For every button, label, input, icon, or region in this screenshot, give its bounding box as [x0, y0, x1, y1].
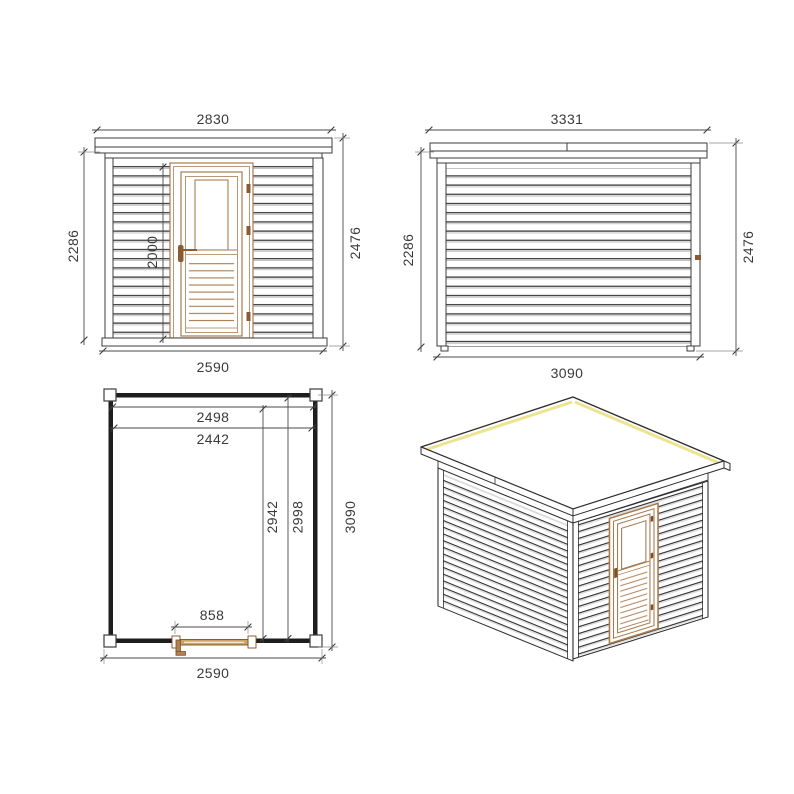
dim-side-total-height: 2476: [696, 138, 756, 356]
door-hinge-icon: [247, 226, 251, 235]
dim-label: 2476: [740, 231, 756, 264]
dim-label: 2998: [290, 501, 306, 534]
front-elevation-view: 2830 2286 2000 2476 2590: [65, 111, 363, 375]
dim-side-roof-width: 3331: [425, 111, 711, 133]
door-handle-icon: [178, 245, 184, 262]
dim-label: 2442: [197, 431, 230, 447]
iso-door-slats: [620, 569, 647, 626]
side-roof-trim: [437, 158, 700, 163]
dim-side-wall-height: 2286: [400, 147, 434, 352]
side-foot: [441, 346, 448, 351]
iso-door-hinge-icon: [651, 516, 653, 522]
plan-door: [172, 636, 256, 655]
front-roof: [95, 138, 332, 153]
dim-front-wall-height: 2286: [65, 147, 100, 345]
plan-door-handle-icon: [176, 640, 181, 653]
dim-plan-outer-depth: 3090: [318, 390, 358, 651]
dim-label: 2830: [197, 111, 230, 127]
dim-label: 2286: [400, 234, 416, 267]
plan-corner-post: [310, 635, 322, 647]
dim-label: 3090: [551, 365, 584, 381]
dim-front-base-width: 2590: [99, 348, 327, 375]
dim-label: 2498: [197, 409, 230, 425]
plan-wall-bottom-right: [248, 639, 316, 644]
iso-door-hinge-icon: [651, 604, 653, 610]
dim-plan-inner-depth-a: 2942: [260, 405, 280, 643]
dim-label: 2286: [65, 230, 81, 263]
plan-wall-right: [313, 393, 318, 643]
technical-drawing-canvas: 2830 2286 2000 2476 2590: [0, 0, 794, 794]
iso-door: [609, 503, 658, 643]
front-roof-trim: [105, 153, 322, 158]
dim-plan-outer-width: 2590: [100, 649, 326, 681]
cabin-drawing: 2830 2286 2000 2476 2590: [0, 0, 794, 794]
dim-label: 2590: [197, 359, 230, 375]
side-elevation-view: 3331 2286 2476 3090: [400, 111, 756, 381]
iso-door-hinge-icon: [651, 552, 653, 558]
dim-plan-inner-width-a: 2498: [109, 404, 317, 425]
floor-plan-view: 2498 2442 2942 2998 3090: [100, 389, 358, 681]
plan-wall-bottom-left: [110, 639, 180, 644]
isometric-view: [421, 397, 730, 661]
front-door: [170, 163, 253, 338]
side-wall-slats: [446, 168, 691, 346]
dim-plan-inner-width-b: 2442: [110, 425, 316, 447]
plan-wall-top: [110, 393, 316, 398]
dim-label: 2590: [197, 665, 230, 681]
dim-label: 3090: [342, 501, 358, 534]
dim-side-base-width: 3090: [433, 354, 704, 381]
door-hinge-icon: [247, 184, 251, 193]
dim-label: 2942: [264, 501, 280, 534]
dim-label: 858: [200, 607, 225, 623]
plan-corner-post: [104, 389, 116, 401]
dim-plan-door-width: 858: [171, 607, 252, 634]
front-base: [102, 338, 327, 346]
iso-roof-corner: [724, 461, 730, 471]
front-door-slats: [189, 258, 234, 326]
dim-front-roof-width: 2830: [92, 111, 336, 133]
dim-front-total-height: 2476: [329, 133, 363, 351]
dim-label: 2000: [144, 236, 160, 269]
dim-label: 3331: [551, 111, 584, 127]
dim-label: 2476: [347, 227, 363, 260]
door-hinge-icon: [247, 312, 251, 321]
side-foot: [687, 346, 694, 351]
dim-plan-inner-depth-b: 2998: [285, 395, 306, 643]
side-door-handle-icon: [695, 255, 701, 260]
plan-corner-post: [104, 635, 116, 647]
iso-door-handle-icon: [614, 568, 617, 578]
